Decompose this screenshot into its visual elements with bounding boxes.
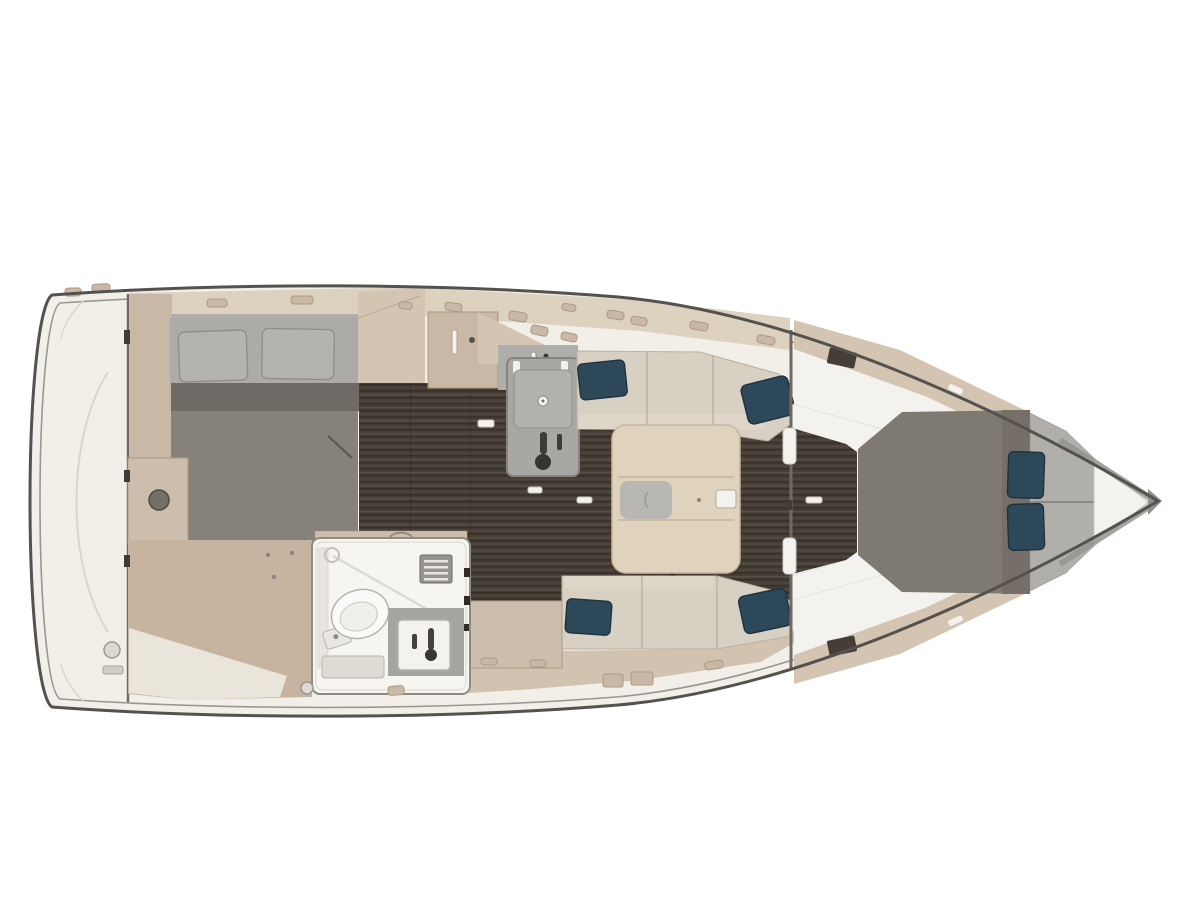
shower-bench [322,656,384,678]
fore-cabin-floor [792,428,857,574]
door-hinge [464,568,470,577]
aft-pillow-left [178,330,248,382]
door-frame-bracket [783,538,796,574]
basin-faucet [428,628,434,650]
floor-plan-canvas [0,0,1200,899]
galley-faucet-lever [557,434,562,450]
floor-hatch-latch [478,420,494,427]
door-latch [464,624,469,631]
floor-hatch-latch [528,487,542,493]
bulkhead-hinge [124,555,130,567]
floor-fastener-dot [272,575,276,579]
teal-pillow [577,360,628,401]
table-cup-holder [716,490,736,508]
drawer-handle [481,658,497,665]
deck-locker-latch [631,672,653,685]
deck-drain-cap [301,682,313,694]
fore-cabin [783,320,1162,684]
drawer-handle [530,660,546,667]
deck-fitting [562,303,577,312]
bulkhead-hinge [124,330,130,344]
locker-knob [469,337,475,343]
locker-handle-slot [452,330,457,354]
floor-hatch-latch [806,497,822,503]
vberth-pillow-starboard [1007,503,1045,550]
aft-duvet-fold-band [171,383,359,411]
table-tray-inset [620,481,672,519]
wash-basin [398,620,450,670]
yacht-floor-plan [0,0,1200,899]
vberth-pillow-port [1007,451,1045,498]
salon-table [612,425,740,573]
deck-fitting [291,296,313,304]
grill-slat [424,566,448,569]
aft-pillow-right [262,328,335,379]
transom-step-fitting [103,666,123,674]
vberth-duvet-head-band [1002,410,1030,594]
cabinet-speaker-porthole [149,490,169,510]
basin-lever [412,634,417,649]
teal-pillow [565,599,612,636]
transom-deck-fill-cap [104,642,120,658]
lid-knob-center [542,400,545,403]
grill-slat [424,572,448,575]
galley-faucet [540,432,547,454]
bulkhead-hinge [124,470,130,482]
galley-faucet-head [535,454,551,470]
starboard-settee-seat-edge [564,576,714,589]
head-side-shelf [318,548,328,668]
floor-hatch-latch [577,497,592,503]
door-frame-bracket [783,428,796,464]
aft-berth-duvet [171,411,358,541]
grill-slat [424,578,448,581]
deck-fitting [207,299,227,307]
door-hinge [464,596,470,605]
door-latch [786,500,792,510]
grill-slat [424,560,448,563]
floor-fastener-dot [290,551,294,555]
deck-fitting [388,685,405,695]
aft-cabin-side-shelf [358,288,425,384]
deck-locker-latch [603,674,623,687]
basin-faucet-head [425,649,437,661]
deck-fitting [445,302,463,312]
deck-fitting [399,301,413,309]
floor-fastener-dot [266,553,270,557]
head-bathroom [312,531,470,694]
table-button [697,498,701,502]
